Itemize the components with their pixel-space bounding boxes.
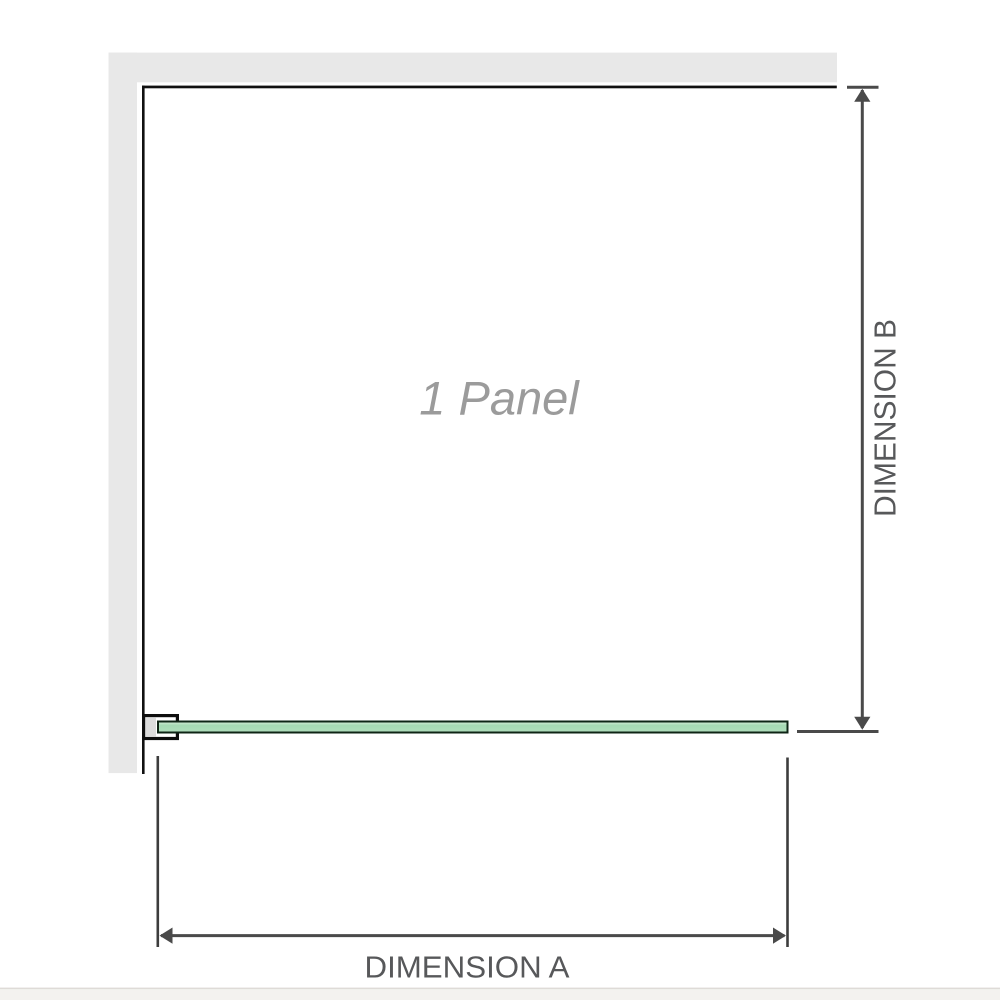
svg-text:1 Panel: 1 Panel bbox=[419, 372, 580, 425]
svg-text:DIMENSION B: DIMENSION B bbox=[868, 319, 903, 517]
svg-text:DIMENSION A: DIMENSION A bbox=[365, 950, 570, 985]
